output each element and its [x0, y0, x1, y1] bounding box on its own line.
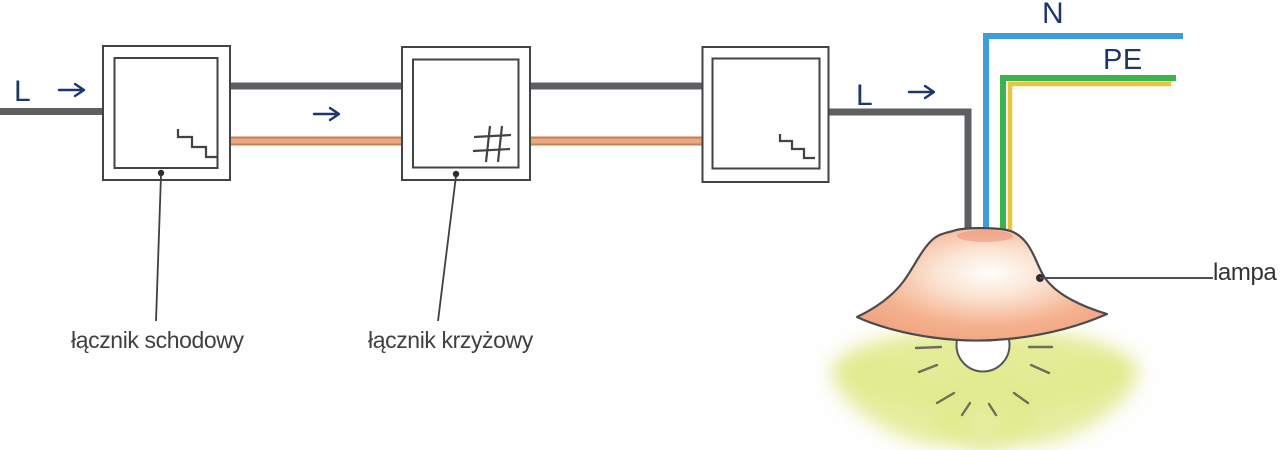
caption-lamp: lampa	[1213, 261, 1276, 285]
caption-cross-switch: łącznik krzyżowy	[368, 329, 533, 352]
label-phase-right: L	[856, 81, 873, 111]
diagram-canvas	[0, 0, 1280, 450]
switch-box-3	[703, 47, 829, 182]
label-earth: PE	[1103, 46, 1143, 75]
earth-wire-green	[1003, 78, 1176, 234]
wiring-diagram: L L N PE łącznik schodowy łącznik krzyżo…	[0, 0, 1280, 450]
leader-lamp	[1036, 274, 1213, 282]
lamp-shade	[857, 228, 1107, 340]
earth-wire-yellow	[1010, 84, 1171, 234]
label-phase-left: L	[14, 77, 31, 107]
leader-switch1	[156, 170, 164, 321]
neutral-wire	[986, 36, 1183, 234]
switch-box-2	[402, 47, 530, 180]
caption-staircase-switch: łącznik schodowy	[71, 329, 244, 352]
phase-wire-to-lamp	[827, 112, 968, 234]
switch-box-1	[103, 46, 230, 180]
leader-switch2	[438, 171, 459, 321]
arrow-right-icon	[314, 108, 339, 120]
label-neutral: N	[1042, 0, 1064, 29]
arrow-right-icon	[59, 84, 84, 96]
arrow-right-icon	[909, 86, 934, 98]
